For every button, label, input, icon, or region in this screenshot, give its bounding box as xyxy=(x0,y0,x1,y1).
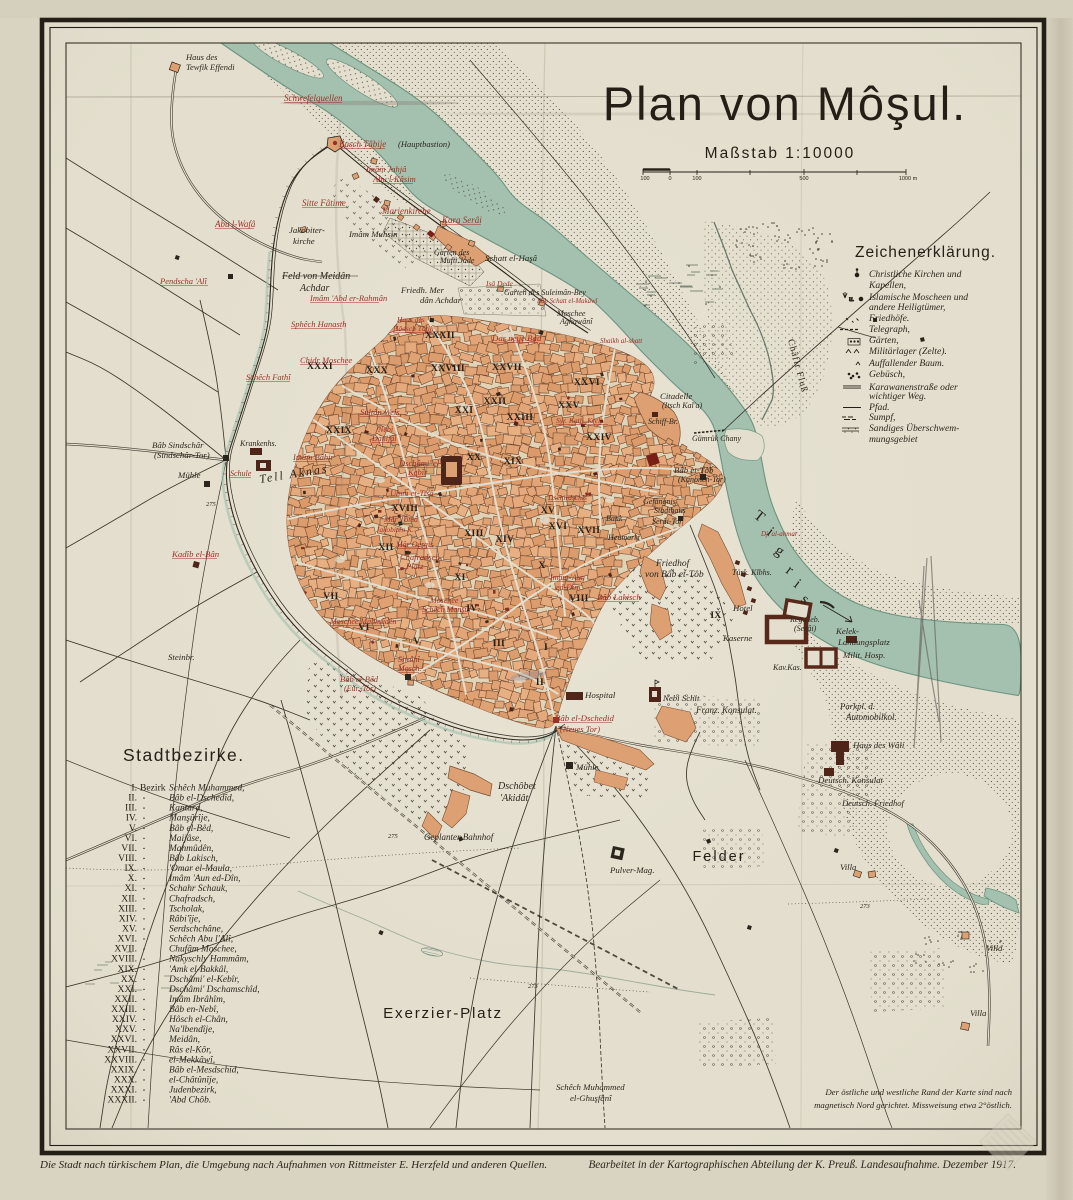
svg-text:'Akidât: 'Akidât xyxy=(500,793,528,804)
svg-text:Mâr Tômâ: Mâr Tômâ xyxy=(383,515,418,524)
svg-text:Dschâmi' el-Kebîr,: Dschâmi' el-Kebîr, xyxy=(168,975,239,985)
svg-text:Citadelle: Citadelle xyxy=(660,391,692,401)
svg-text:Kebîr: Kebîr xyxy=(407,467,428,477)
svg-text:Kapellen,: Kapellen, xyxy=(868,280,906,291)
svg-text:Umm et-Tisâ: Umm et-Tisâ xyxy=(390,488,434,498)
svg-text:Mühle: Mühle xyxy=(575,762,599,772)
svg-text:Bâb Sindschâr: Bâb Sindschâr xyxy=(152,440,204,450)
svg-text:Maijâse,: Maijâse, xyxy=(168,834,202,844)
svg-text:Jakobiter-: Jakobiter- xyxy=(289,225,325,235)
svg-text:Imâm 'Aun: Imâm 'Aun xyxy=(549,573,585,582)
svg-text:Dschirdschîs: Dschirdschîs xyxy=(547,493,587,502)
svg-text:Garten des Suleimân-Bey: Garten des Suleimân-Bey xyxy=(504,288,586,297)
svg-text:XIV: XIV xyxy=(496,535,515,545)
svg-text:Pendscha 'Alî: Pendscha 'Alî xyxy=(159,276,208,286)
svg-text:Mahmûdên,: Mahmûdên, xyxy=(168,844,214,854)
svg-text:Râbi'îje,: Râbi'îje, xyxy=(168,914,200,924)
svg-text:Marienkirche: Marienkirche xyxy=(381,206,431,216)
svg-text:XXXII.: XXXII. xyxy=(107,1095,137,1106)
svg-text:Steinbr.: Steinbr. xyxy=(168,652,195,662)
svg-text:wichtiger Weg.: wichtiger Weg. xyxy=(869,391,926,402)
svg-text:Bâb el-Dschedîd,: Bâb el-Dschedîd, xyxy=(169,794,234,804)
svg-text:Tscholak,: Tscholak, xyxy=(169,904,204,914)
svg-text:Syr. Kath. Krch.: Syr. Kath. Krch. xyxy=(556,416,604,425)
svg-text:(Kanonen-Tor): (Kanonen-Tor) xyxy=(678,475,726,484)
svg-text:Kara Serâi: Kara Serâi xyxy=(441,215,482,225)
svg-text:II: II xyxy=(536,678,544,688)
svg-text:XI: XI xyxy=(454,573,465,583)
svg-text:'Abd Chôb.: 'Abd Chôb. xyxy=(169,1096,211,1106)
svg-text:Serâi-Tor: Serâi-Tor xyxy=(652,517,683,526)
svg-text:XX: XX xyxy=(467,453,482,463)
svg-text:(Eur.-Tor): (Eur.-Tor) xyxy=(344,684,376,693)
svg-text:XVII: XVII xyxy=(578,526,601,536)
svg-text:Nakyschly Hammâm,: Nakyschly Hammâm, xyxy=(168,955,249,965)
svg-text:dân Achdar: dân Achdar xyxy=(420,295,462,305)
svg-text:Râs el-Kôr,: Râs el-Kôr, xyxy=(168,1045,211,1055)
svg-text:0: 0 xyxy=(668,176,671,182)
svg-text:Plan von Môşul.: Plan von Môşul. xyxy=(603,77,967,130)
svg-text:Imâm Ibrâhîm,: Imâm Ibrâhîm, xyxy=(168,995,225,1005)
svg-text:Felder: Felder xyxy=(692,849,745,865)
svg-text:Bâb Schatt el-Makâwî: Bâb Schatt el-Makâwî xyxy=(537,298,599,305)
svg-text:Dânijâl: Dânijâl xyxy=(371,434,397,443)
svg-text:VI: VI xyxy=(358,623,369,633)
svg-text:VII: VII xyxy=(323,592,338,602)
svg-text:Shaikh al-shatt: Shaikh al-shatt xyxy=(600,337,643,345)
svg-text:X: X xyxy=(538,561,545,571)
svg-text:Hospital: Hospital xyxy=(584,690,616,700)
svg-text:Christliche Kirchen und: Christliche Kirchen und xyxy=(869,269,962,280)
svg-text:Sitte Fâtime: Sitte Fâtime xyxy=(302,198,346,208)
svg-text:Imâm Jahjâ: Imâm Jahjâ xyxy=(365,164,406,174)
svg-text:Milit. Hosp.: Milit. Hosp. xyxy=(842,650,885,660)
svg-text:andere Heiligtümer,: andere Heiligtümer, xyxy=(869,302,945,313)
svg-text:Heumarkt: Heumarkt xyxy=(607,533,641,542)
svg-text:V: V xyxy=(413,637,420,647)
svg-text:273: 273 xyxy=(528,983,539,990)
svg-text:(Sindschâr-Tor): (Sindschâr-Tor) xyxy=(154,450,210,460)
svg-text:Mâr Oergis: Mâr Oergis xyxy=(395,540,433,549)
svg-text:(Serâi): (Serâi) xyxy=(794,624,817,633)
svg-text:Friedhöfe.: Friedhöfe. xyxy=(868,313,909,324)
svg-text:XXX: XXX xyxy=(366,366,388,376)
svg-text:XVIII: XVIII xyxy=(392,504,419,514)
svg-text:VIII: VIII xyxy=(569,594,589,604)
svg-text:Deutsch. Friedhof: Deutsch. Friedhof xyxy=(841,798,905,808)
svg-text:Schatt el-Haşâ: Schatt el-Haşâ xyxy=(485,253,538,263)
svg-text:Bâb el-Mesdschid,: Bâb el-Mesdschid, xyxy=(169,1066,239,1076)
svg-text:Meidân,: Meidân, xyxy=(168,1035,200,1045)
svg-text:Schêch Manşûr: Schêch Manşûr xyxy=(422,605,472,614)
svg-text:275: 275 xyxy=(206,501,217,508)
svg-text:'Amk el-Bakkâl,: 'Amk el-Bakkâl, xyxy=(169,965,228,975)
svg-text:Bâb Lakisch: Bâb Lakisch xyxy=(597,592,641,602)
svg-text:mungsgebiet: mungsgebiet xyxy=(869,434,918,445)
svg-text:Feld von Meidân: Feld von Meidân xyxy=(281,271,350,282)
svg-text:Schêch Abu l'Alî,: Schêch Abu l'Alî, xyxy=(169,935,233,945)
svg-text:(Itsch Kal'a): (Itsch Kal'a) xyxy=(662,401,702,410)
svg-text:Nebi: Nebi xyxy=(377,425,393,434)
svg-text:Zeichenerklärung.: Zeichenerklärung. xyxy=(855,244,996,261)
svg-text:XXIII: XXIII xyxy=(507,413,534,423)
svg-text:Nebi Schit: Nebi Schit xyxy=(662,693,700,703)
svg-text:Schêch Muhammed: Schêch Muhammed xyxy=(556,1082,625,1092)
svg-text:Manşûrîje,: Manşûrîje, xyxy=(168,814,210,824)
svg-text:Aghawânî: Aghawânî xyxy=(559,317,593,326)
svg-text:Serdschchâne,: Serdschchâne, xyxy=(169,925,223,935)
svg-text:Bâb el-Bêd,: Bâb el-Bêd, xyxy=(169,824,213,834)
svg-text:XXIV: XXIV xyxy=(586,433,612,443)
svg-text:Türk. Klbhs.: Türk. Klbhs. xyxy=(732,568,772,577)
svg-text:Haus des: Haus des xyxy=(396,315,425,324)
svg-text:Reg.Geb.: Reg.Geb. xyxy=(789,615,820,624)
svg-text:Villa: Villa xyxy=(970,1008,987,1018)
svg-text:u.: u. xyxy=(849,295,855,303)
svg-text:Villa: Villa xyxy=(986,943,1003,953)
svg-text:Bâb el-Dschedid: Bâb el-Dschedid xyxy=(555,713,614,723)
svg-text:Der östliche und westliche Ran: Der östliche und westliche Rand der Kart… xyxy=(824,1087,1012,1097)
svg-text:Bank: Bank xyxy=(606,514,623,523)
svg-text:Bezirk: Bezirk xyxy=(140,783,166,794)
svg-text:Dschôbet: Dschôbet xyxy=(497,781,536,792)
svg-text:Automobilkol.: Automobilkol. xyxy=(845,712,897,722)
svg-text:XXIX: XXIX xyxy=(326,426,352,436)
svg-text:Telegraph,: Telegraph, xyxy=(869,324,910,335)
svg-text:XXVI: XXVI xyxy=(574,378,600,388)
svg-text:I: I xyxy=(544,643,548,653)
svg-text:Gärten,: Gärten, xyxy=(869,335,899,346)
svg-text:Schêch Fathî: Schêch Fathî xyxy=(246,372,291,382)
svg-text:Mosch.: Mosch. xyxy=(397,664,421,673)
svg-text:magnetisch Nord gerichtet. Mis: magnetisch Nord gerichtet. Missweisung e… xyxy=(814,1100,1012,1110)
svg-text:Parkpl. d.: Parkpl. d. xyxy=(839,701,875,711)
svg-text:Kantara,: Kantara, xyxy=(168,804,203,814)
svg-text:XII: XII xyxy=(378,543,393,553)
svg-text:Haus des Wâli: Haus des Wâli xyxy=(852,740,905,750)
svg-text:Mühle: Mühle xyxy=(177,470,201,480)
svg-text:Kav.Kas.: Kav.Kas. xyxy=(772,663,802,672)
svg-text:XXXII: XXXII xyxy=(425,331,455,341)
svg-text:Schahr Schauk,: Schahr Schauk, xyxy=(169,884,227,894)
svg-text:XV: XV xyxy=(541,506,556,516)
svg-text:Imâm Bâhir: Imâm Bâhir xyxy=(292,452,335,462)
svg-text:ed-Dîn: ed-Dîn xyxy=(556,583,578,592)
svg-text:Mufti Jade: Mufti Jade xyxy=(439,256,475,265)
svg-text:Friedh. Mer: Friedh. Mer xyxy=(400,285,445,295)
svg-text:Imâm 'Aun ed-Dîn,: Imâm 'Aun ed-Dîn, xyxy=(168,874,241,884)
svg-text:Das neue Bad: Das neue Bad xyxy=(491,333,542,343)
svg-text:Schiff-Br.: Schiff-Br. xyxy=(648,417,678,426)
svg-text:Dj. al-ahmar: Dj. al-ahmar xyxy=(760,530,798,538)
svg-text:XXII: XXII xyxy=(484,397,507,407)
svg-text:500: 500 xyxy=(799,176,808,182)
svg-text:Geplanter Bahnhof: Geplanter Bahnhof xyxy=(424,832,495,842)
svg-text:von Bâb et-Tôb: von Bâb et-Tôb xyxy=(645,570,704,580)
svg-text:Jakobiten K.: Jakobiten K. xyxy=(376,525,414,534)
svg-text:'Omar el-Maula,: 'Omar el-Maula, xyxy=(169,864,232,874)
svg-text:Kelek-: Kelek- xyxy=(835,626,859,636)
svg-text:XXI: XXI xyxy=(455,406,474,416)
svg-text:Sandiges Überschwem-: Sandiges Überschwem- xyxy=(869,422,959,434)
svg-text:Dschâmi' Dschamschîd,: Dschâmi' Dschamschîd, xyxy=(168,985,260,995)
svg-text:Bearbeitet in der Kartographis: Bearbeitet in der Kartographischen Abtei… xyxy=(588,1159,1016,1171)
svg-text:Siwânî: Siwânî xyxy=(398,655,421,664)
svg-text:Schwefelquellen: Schwefelquellen xyxy=(284,93,343,103)
svg-text:Imâm Muhsin: Imâm Muhsin xyxy=(348,229,398,239)
svg-text:Bâb et-Tôb: Bâb et-Tôb xyxy=(674,465,714,475)
svg-text:Platz: Platz xyxy=(405,561,424,571)
svg-text:XXV: XXV xyxy=(558,401,580,411)
svg-text:(Hauptbastion): (Hauptbastion) xyxy=(398,139,450,149)
svg-text:273: 273 xyxy=(860,903,871,910)
svg-text:XXXI: XXXI xyxy=(307,362,333,372)
svg-text:Basch Tâbije: Basch Tâbije xyxy=(339,139,386,149)
svg-text:Moschee: Moschee xyxy=(429,596,459,605)
svg-text:Sphêch Hanasth: Sphêch Hanasth xyxy=(291,319,346,329)
svg-text:Landungsplatz: Landungsplatz xyxy=(837,637,890,647)
svg-text:Schêch Muhammed,: Schêch Muhammed, xyxy=(169,784,245,794)
svg-text:Kaserne: Kaserne xyxy=(722,633,752,643)
svg-text:Chufâm Moschee,: Chufâm Moschee, xyxy=(169,944,237,955)
svg-text:Stadtbezirke.: Stadtbezirke. xyxy=(123,745,245,765)
svg-text:1000 m: 1000 m xyxy=(899,176,918,182)
svg-text:Krankenhs.: Krankenhs. xyxy=(239,439,277,448)
svg-text:Kadîb el-Bân: Kadîb el-Bân xyxy=(171,549,220,559)
svg-text:Haus des: Haus des xyxy=(185,52,218,62)
svg-text:Exerzier-Platz: Exerzier-Platz xyxy=(383,1005,503,1022)
svg-text:Stadthaus: Stadthaus xyxy=(654,506,686,515)
svg-text:Imâm 'Abd er-Rahmân: Imâm 'Abd er-Rahmân xyxy=(309,293,387,303)
svg-text:XIII: XIII xyxy=(464,529,484,539)
svg-text:Na'lbendîje,: Na'lbendîje, xyxy=(168,1025,215,1035)
svg-text:Maßstab 1:10000: Maßstab 1:10000 xyxy=(705,145,856,162)
svg-text:Franz. Konsulat.: Franz. Konsulat. xyxy=(695,705,757,715)
svg-text:Chafradsch,: Chafradsch, xyxy=(169,893,215,904)
svg-text:Hotel: Hotel xyxy=(732,603,753,613)
svg-text:IV: IV xyxy=(466,604,477,614)
svg-text:Gefängnis: Gefängnis xyxy=(643,497,676,506)
svg-text:Militärlager (Zelte).: Militärlager (Zelte). xyxy=(868,346,947,357)
svg-text:XVI: XVI xyxy=(549,522,568,532)
svg-text:Judenbezirk,: Judenbezirk, xyxy=(169,1086,217,1096)
svg-text:Villa: Villa xyxy=(840,862,857,872)
svg-text:Sumpf,: Sumpf, xyxy=(869,412,895,423)
svg-text:100: 100 xyxy=(640,176,649,182)
svg-text:Pulver-Mag.: Pulver-Mag. xyxy=(609,865,655,875)
svg-text:Auffallender Baum.: Auffallender Baum. xyxy=(868,358,944,369)
svg-text:Bâb en-Nebî,: Bâb en-Nebî, xyxy=(169,1005,218,1015)
svg-text:Bâb el-Bêd: Bâb el-Bêd xyxy=(340,674,379,684)
svg-text:XIX: XIX xyxy=(504,457,523,467)
svg-text:XXVIII: XXVIII xyxy=(431,364,465,374)
svg-text:Friedhof: Friedhof xyxy=(655,558,691,569)
svg-text:kirche: kirche xyxy=(293,236,315,246)
svg-text:Abu l-Wafâ: Abu l-Wafâ xyxy=(214,219,256,229)
svg-text:275: 275 xyxy=(388,833,399,840)
svg-text:Isâ Dede: Isâ Dede xyxy=(485,279,514,288)
svg-text:Bâb Lakisch,: Bâb Lakisch, xyxy=(169,854,218,864)
svg-text:Tewfik Effendi: Tewfik Effendi xyxy=(186,62,235,72)
svg-text:el-Châtûnîje,: el-Châtûnîje, xyxy=(169,1076,218,1086)
svg-text:Sultân Weis: Sultân Weis xyxy=(360,407,400,417)
svg-text:Die Stadt nach türkischem Plan: Die Stadt nach türkischem Plan, die Umge… xyxy=(39,1159,547,1171)
svg-text:III: III xyxy=(493,639,505,649)
svg-text:el-Mekkâwî,: el-Mekkâwî, xyxy=(169,1055,215,1065)
svg-text:Gümrük Chany: Gümrük Chany xyxy=(692,434,742,443)
svg-text:100: 100 xyxy=(692,176,701,182)
svg-text:Abu l-Kâsim: Abu l-Kâsim xyxy=(372,174,416,184)
svg-text:Schule: Schule xyxy=(230,469,252,478)
svg-text:Gebüsch,: Gebüsch, xyxy=(869,369,905,380)
svg-text:(Neues Tor): (Neues Tor) xyxy=(560,724,600,734)
svg-text:XXVII: XXVII xyxy=(492,363,522,373)
svg-text:el-Ghuşfânî: el-Ghuşfânî xyxy=(570,1093,612,1103)
svg-text:IX: IX xyxy=(710,611,721,621)
svg-text:Hôsch el-Chân,: Hôsch el-Chân, xyxy=(168,1015,228,1025)
svg-text:Deutsch. Konsulat: Deutsch. Konsulat xyxy=(817,775,884,785)
